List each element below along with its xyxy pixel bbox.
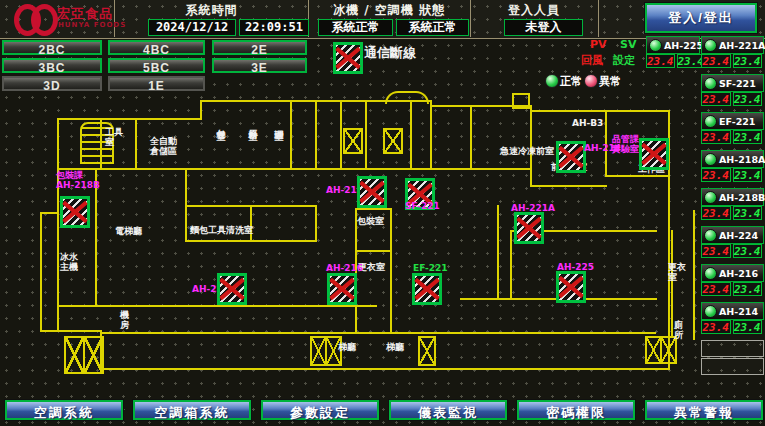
pv-value: 23.4 bbox=[701, 168, 731, 182]
comm-loss-icon bbox=[333, 42, 363, 74]
unit-row-ah-224[interactable]: AH-224 bbox=[701, 226, 764, 244]
unit-name: AH-221A bbox=[719, 40, 765, 51]
device-icon-ef-221[interactable] bbox=[412, 273, 442, 305]
floor-button-5bc[interactable]: 5BC bbox=[108, 58, 205, 73]
nav-param-setting-button[interactable]: 參數設定 bbox=[261, 400, 379, 420]
wall bbox=[530, 110, 670, 112]
nav-password-auth-button[interactable]: 密碼權限 bbox=[517, 400, 635, 420]
normal-label: 正常 bbox=[560, 74, 582, 89]
sv-value: 23.4 bbox=[733, 168, 763, 182]
pv-tag: PV bbox=[590, 38, 607, 51]
pv-value: 23.4 bbox=[701, 244, 731, 258]
floor-button-2bc[interactable]: 2BC bbox=[2, 40, 102, 55]
room-label-hall2: 梯廳 bbox=[386, 342, 404, 352]
room-label-v2: 原料室 bbox=[248, 122, 258, 125]
room-label-machine: 機 房 bbox=[120, 310, 129, 330]
floor-button-3d[interactable]: 3D bbox=[2, 76, 102, 91]
login-user-label: 登入人員 bbox=[470, 2, 598, 19]
wall bbox=[390, 208, 392, 332]
unit-values: 23.4 23.4 bbox=[701, 168, 762, 182]
unit-row-ef-221[interactable]: EF-221 bbox=[701, 112, 764, 130]
nav-ac-system-button[interactable]: 空調系統 bbox=[5, 400, 123, 420]
abnormal-label: 異常 bbox=[599, 74, 621, 89]
elevator-icon bbox=[645, 336, 677, 364]
machine-status-label: 冰機 / 空調機 狀態 bbox=[308, 2, 470, 19]
unit-values: 23.4 23.4 bbox=[701, 54, 762, 68]
pv-value: 23.4 bbox=[701, 130, 731, 144]
room-label-v1: 包材室 bbox=[216, 122, 226, 125]
sv-value: 23.4 bbox=[733, 130, 763, 144]
unit-led-icon bbox=[704, 191, 717, 204]
wall bbox=[315, 205, 317, 242]
login-user-value: 未登入 bbox=[504, 19, 583, 36]
empty-slot bbox=[701, 358, 764, 375]
device-label-ah-216: AH-216 bbox=[326, 263, 363, 273]
wall bbox=[57, 118, 202, 120]
pv-name: 回風 bbox=[581, 53, 603, 68]
empty-slot bbox=[701, 340, 764, 357]
unit-led-icon bbox=[704, 267, 717, 280]
unit-values: 23.4 23.4 bbox=[701, 206, 762, 220]
device-icon-ah-224[interactable] bbox=[217, 273, 247, 305]
sv-value: 23.4 bbox=[733, 54, 763, 68]
wall bbox=[430, 100, 432, 168]
wall-box bbox=[512, 93, 530, 109]
wall bbox=[497, 205, 499, 298]
wall bbox=[100, 368, 670, 370]
nav-alarm-button[interactable]: 異常警報 bbox=[645, 400, 763, 420]
device-label-qc: 品管課 實驗室 bbox=[612, 134, 639, 154]
floor-button-3bc[interactable]: 3BC bbox=[2, 58, 102, 73]
unit-row-ah-218a[interactable]: AH-218A bbox=[701, 150, 764, 168]
unit-name: SF-221 bbox=[719, 78, 756, 89]
sv-value: 23.4 bbox=[733, 92, 763, 106]
room-label-chiller: 冰水 主機 bbox=[60, 252, 78, 272]
device-icon-ah-221a[interactable] bbox=[514, 212, 544, 244]
device-icon-ah-214[interactable] bbox=[556, 141, 586, 173]
wall bbox=[200, 100, 202, 120]
system-time-label: 系統時間 bbox=[115, 2, 308, 19]
device-icon-ah-225[interactable] bbox=[556, 271, 586, 303]
device-icon-ah-218b[interactable] bbox=[60, 196, 90, 228]
unit-name: AH-214 bbox=[719, 306, 758, 317]
sv-value: 23.4 bbox=[733, 244, 763, 258]
pv-value: 23.4 bbox=[646, 54, 675, 68]
stair-x-icon bbox=[383, 128, 403, 154]
unit-name: AH-224 bbox=[719, 230, 758, 241]
unit-values: 23.4 23.4 bbox=[701, 130, 762, 144]
unit-led-icon bbox=[649, 39, 662, 52]
wall bbox=[250, 205, 252, 242]
wall bbox=[340, 100, 342, 168]
unit-values: 23.4 23.4 bbox=[701, 320, 762, 334]
unit-led-icon bbox=[704, 153, 717, 166]
sv-name: 設定 bbox=[613, 53, 635, 68]
wall bbox=[510, 230, 512, 298]
room-label-ahb3: AH-B3 bbox=[572, 118, 603, 128]
chiller-status-value: 系統正常 bbox=[318, 19, 393, 36]
device-icon-ah-216[interactable] bbox=[327, 273, 357, 305]
wall bbox=[365, 100, 367, 168]
wall bbox=[315, 100, 317, 168]
elevator-icon bbox=[64, 336, 104, 374]
comm-loss-label: 通信斷線 bbox=[364, 48, 416, 58]
wall-arc bbox=[385, 91, 429, 104]
wall bbox=[410, 100, 412, 168]
unit-values: 23.4 23.4 bbox=[701, 282, 762, 296]
brand-subname: HUNYA FOODS bbox=[58, 21, 126, 29]
wall bbox=[40, 330, 57, 332]
unit-name: EF-221 bbox=[719, 116, 755, 127]
stair-x-icon bbox=[343, 128, 363, 154]
sv-value: 23.4 bbox=[733, 282, 763, 296]
device-icon-qc[interactable] bbox=[639, 138, 669, 170]
normal-led-icon bbox=[545, 74, 559, 88]
login-logout-button[interactable]: 登入/登出 bbox=[645, 3, 757, 33]
stair-x-icon bbox=[418, 336, 436, 366]
divider bbox=[598, 0, 599, 37]
wall bbox=[100, 332, 656, 334]
pv-value: 23.4 bbox=[701, 206, 731, 220]
system-date-value: 2024/12/12 bbox=[148, 19, 236, 36]
unit-name: AH-218B bbox=[719, 192, 765, 203]
header-bar: 宏亞食品 HUNYA FOODS 系統時間 2024/12/12 22:09:5… bbox=[0, 0, 765, 39]
unit-name: AH-225 bbox=[664, 40, 703, 51]
room-label-tool: 工具室 bbox=[105, 127, 127, 147]
floor-button-1e[interactable]: 1E bbox=[108, 76, 205, 91]
pv-value: 23.4 bbox=[701, 54, 731, 68]
unit-name: AH-218A bbox=[719, 154, 765, 165]
room-label-freezer: 急速冷凍前室 bbox=[500, 146, 554, 156]
room-label-hall1: 梯廳 bbox=[338, 342, 356, 352]
system-clock-value: 22:09:51 bbox=[239, 19, 309, 36]
ac-status-value: 系統正常 bbox=[396, 19, 469, 36]
unit-row-ah-216[interactable]: AH-216 bbox=[701, 264, 764, 282]
wall bbox=[57, 330, 102, 332]
room-label-elevator: 電梯廳 bbox=[115, 226, 142, 236]
wall bbox=[57, 168, 432, 170]
unit-row-sf-221[interactable]: SF-221 bbox=[701, 74, 764, 92]
wall bbox=[430, 168, 532, 170]
room-label-storage: 全自動 倉儲區 bbox=[150, 136, 177, 156]
room-label-toilet: 廁所 bbox=[674, 320, 686, 340]
floor-button-4bc[interactable]: 4BC bbox=[108, 40, 205, 55]
unit-row-ah-218b[interactable]: AH-218B bbox=[701, 188, 764, 206]
sv-value: 23.4 bbox=[733, 320, 763, 334]
nav-ahu-system-button[interactable]: 空調箱系統 bbox=[133, 400, 251, 420]
unit-led-icon bbox=[704, 39, 717, 52]
wall bbox=[40, 212, 42, 332]
room-label-packing: 包裝室 bbox=[357, 216, 384, 226]
wall bbox=[40, 212, 57, 214]
unit-values: 23.4 23.4 bbox=[701, 244, 762, 258]
wall bbox=[355, 208, 392, 210]
pv-value: 23.4 bbox=[701, 282, 731, 296]
unit-led-icon bbox=[704, 229, 717, 242]
sv-tag: SV bbox=[620, 38, 636, 51]
unit-row-ah-221a[interactable]: AH-221A bbox=[701, 36, 764, 54]
room-label-locker2: 更衣室 bbox=[668, 262, 692, 282]
wall bbox=[135, 118, 137, 168]
pv-value: 23.4 bbox=[701, 320, 731, 334]
wall bbox=[605, 175, 670, 177]
brand-logo-icon bbox=[31, 4, 58, 36]
room-label-washing: 麵包工具清洗室 bbox=[190, 225, 253, 235]
wall bbox=[57, 118, 59, 332]
sv-value: 23.4 bbox=[733, 206, 763, 220]
unit-led-icon bbox=[704, 77, 717, 90]
abnormal-led-icon bbox=[584, 74, 598, 88]
wall bbox=[530, 185, 607, 187]
room-label-v3: 調理室 bbox=[274, 122, 284, 125]
floor-button-2e[interactable]: 2E bbox=[212, 40, 307, 55]
unit-led-icon bbox=[704, 115, 717, 128]
unit-values: 23.4 23.4 bbox=[646, 54, 698, 68]
device-label-sf-221: SF-221 bbox=[405, 201, 440, 211]
wall bbox=[355, 250, 392, 252]
unit-row-ah-225[interactable]: AH-225 bbox=[646, 36, 700, 54]
wall bbox=[290, 100, 292, 168]
pv-value: 23.4 bbox=[701, 92, 731, 106]
device-label-ah-218b: 包裝課 AH-218B bbox=[56, 170, 100, 190]
wall bbox=[671, 230, 673, 338]
floor-button-3e[interactable]: 3E bbox=[212, 58, 307, 73]
hmi-screen: 宏亞食品 HUNYA FOODS 系統時間 2024/12/12 22:09:5… bbox=[0, 0, 765, 426]
wall bbox=[470, 105, 472, 168]
wall bbox=[693, 210, 695, 340]
nav-meter-monitor-button[interactable]: 儀表監視 bbox=[389, 400, 507, 420]
unit-name: AH-216 bbox=[719, 268, 758, 279]
device-label-ef-221: EF-221 bbox=[413, 263, 448, 273]
unit-values: 23.4 23.4 bbox=[701, 92, 762, 106]
wall bbox=[57, 305, 377, 307]
unit-led-icon bbox=[704, 305, 717, 318]
unit-row-ah-214[interactable]: AH-214 bbox=[701, 302, 764, 320]
device-icon-ah-218a[interactable] bbox=[357, 176, 387, 208]
